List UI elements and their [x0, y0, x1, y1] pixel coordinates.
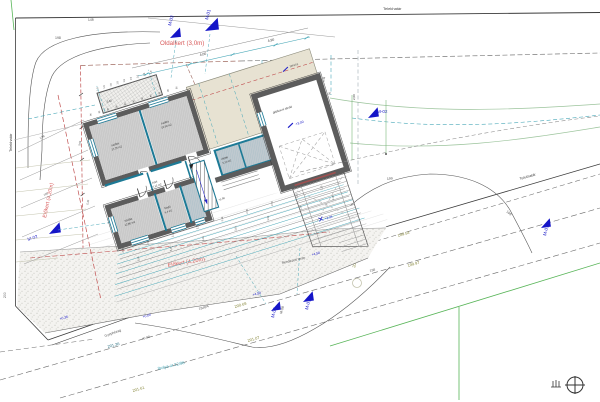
- svg-text:Telekhatár: Telekhatár: [383, 6, 402, 11]
- svg-text:3,10: 3,10: [202, 236, 205, 241]
- svg-text:2,15: 2,15: [271, 201, 274, 206]
- svg-text:200: 200: [3, 292, 7, 298]
- svg-text:146: 146: [88, 18, 94, 22]
- svg-text:2,00: 2,00: [352, 94, 356, 100]
- svg-text:199: 199: [387, 176, 393, 181]
- svg-text:3,10: 3,10: [169, 246, 172, 251]
- svg-text:2,15: 2,15: [246, 208, 249, 213]
- svg-text:2,15: 2,15: [221, 216, 224, 221]
- svg-text:Oldalkert (3,0m): Oldalkert (3,0m): [160, 40, 204, 47]
- svg-text:3,10: 3,10: [234, 225, 237, 230]
- svg-text:3,10: 3,10: [137, 256, 140, 261]
- svg-text:Telekhatár: Telekhatár: [8, 133, 13, 152]
- svg-text:198: 198: [55, 36, 61, 40]
- svg-text:3,10: 3,10: [267, 215, 270, 220]
